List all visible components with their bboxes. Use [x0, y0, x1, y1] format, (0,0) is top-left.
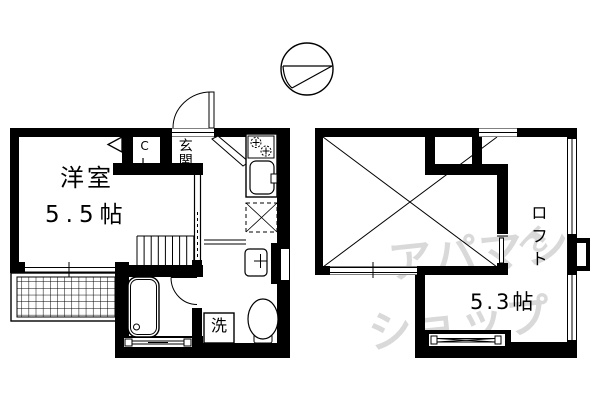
entrance-step-edge	[212, 136, 249, 166]
washroom-window	[281, 249, 289, 280]
kitchen-stove	[248, 136, 274, 158]
bathtub	[128, 277, 159, 337]
loft-size-label: 5.3帖	[470, 291, 536, 313]
washer-label: 洗	[204, 318, 234, 335]
entrance-door	[172, 92, 214, 137]
kitchen-counter	[246, 134, 277, 197]
bathroom-window	[124, 338, 192, 347]
kitchen-sink	[250, 161, 277, 194]
washroom-door	[204, 240, 246, 244]
loft-top-window	[479, 129, 517, 137]
closet-door-icon	[108, 137, 122, 152]
wash-basin	[245, 249, 267, 276]
void-bottom-window	[330, 262, 417, 278]
floor-plan-loft	[315, 128, 590, 358]
open-ceiling-void	[323, 137, 497, 267]
loft-label: ロフト	[527, 204, 545, 273]
room-label: 洋室	[60, 166, 114, 191]
closet-label: CL	[138, 139, 151, 173]
bathroom-door	[171, 278, 197, 305]
compass-icon	[281, 43, 333, 95]
entrance-label: 玄関	[177, 138, 192, 168]
toilet	[248, 299, 278, 343]
balcony-window	[25, 262, 115, 277]
refrigerator-space	[246, 203, 277, 232]
balcony	[11, 273, 119, 321]
partition-wall	[195, 175, 201, 265]
floor-plan-drawing	[0, 0, 600, 400]
floor-plan-page: アパマン ショップ ん	[0, 0, 600, 400]
loft-ladder	[423, 330, 511, 346]
loft-opening-door	[497, 236, 508, 263]
stairs	[137, 236, 194, 265]
room-size-label: 5.5帖	[45, 203, 129, 227]
